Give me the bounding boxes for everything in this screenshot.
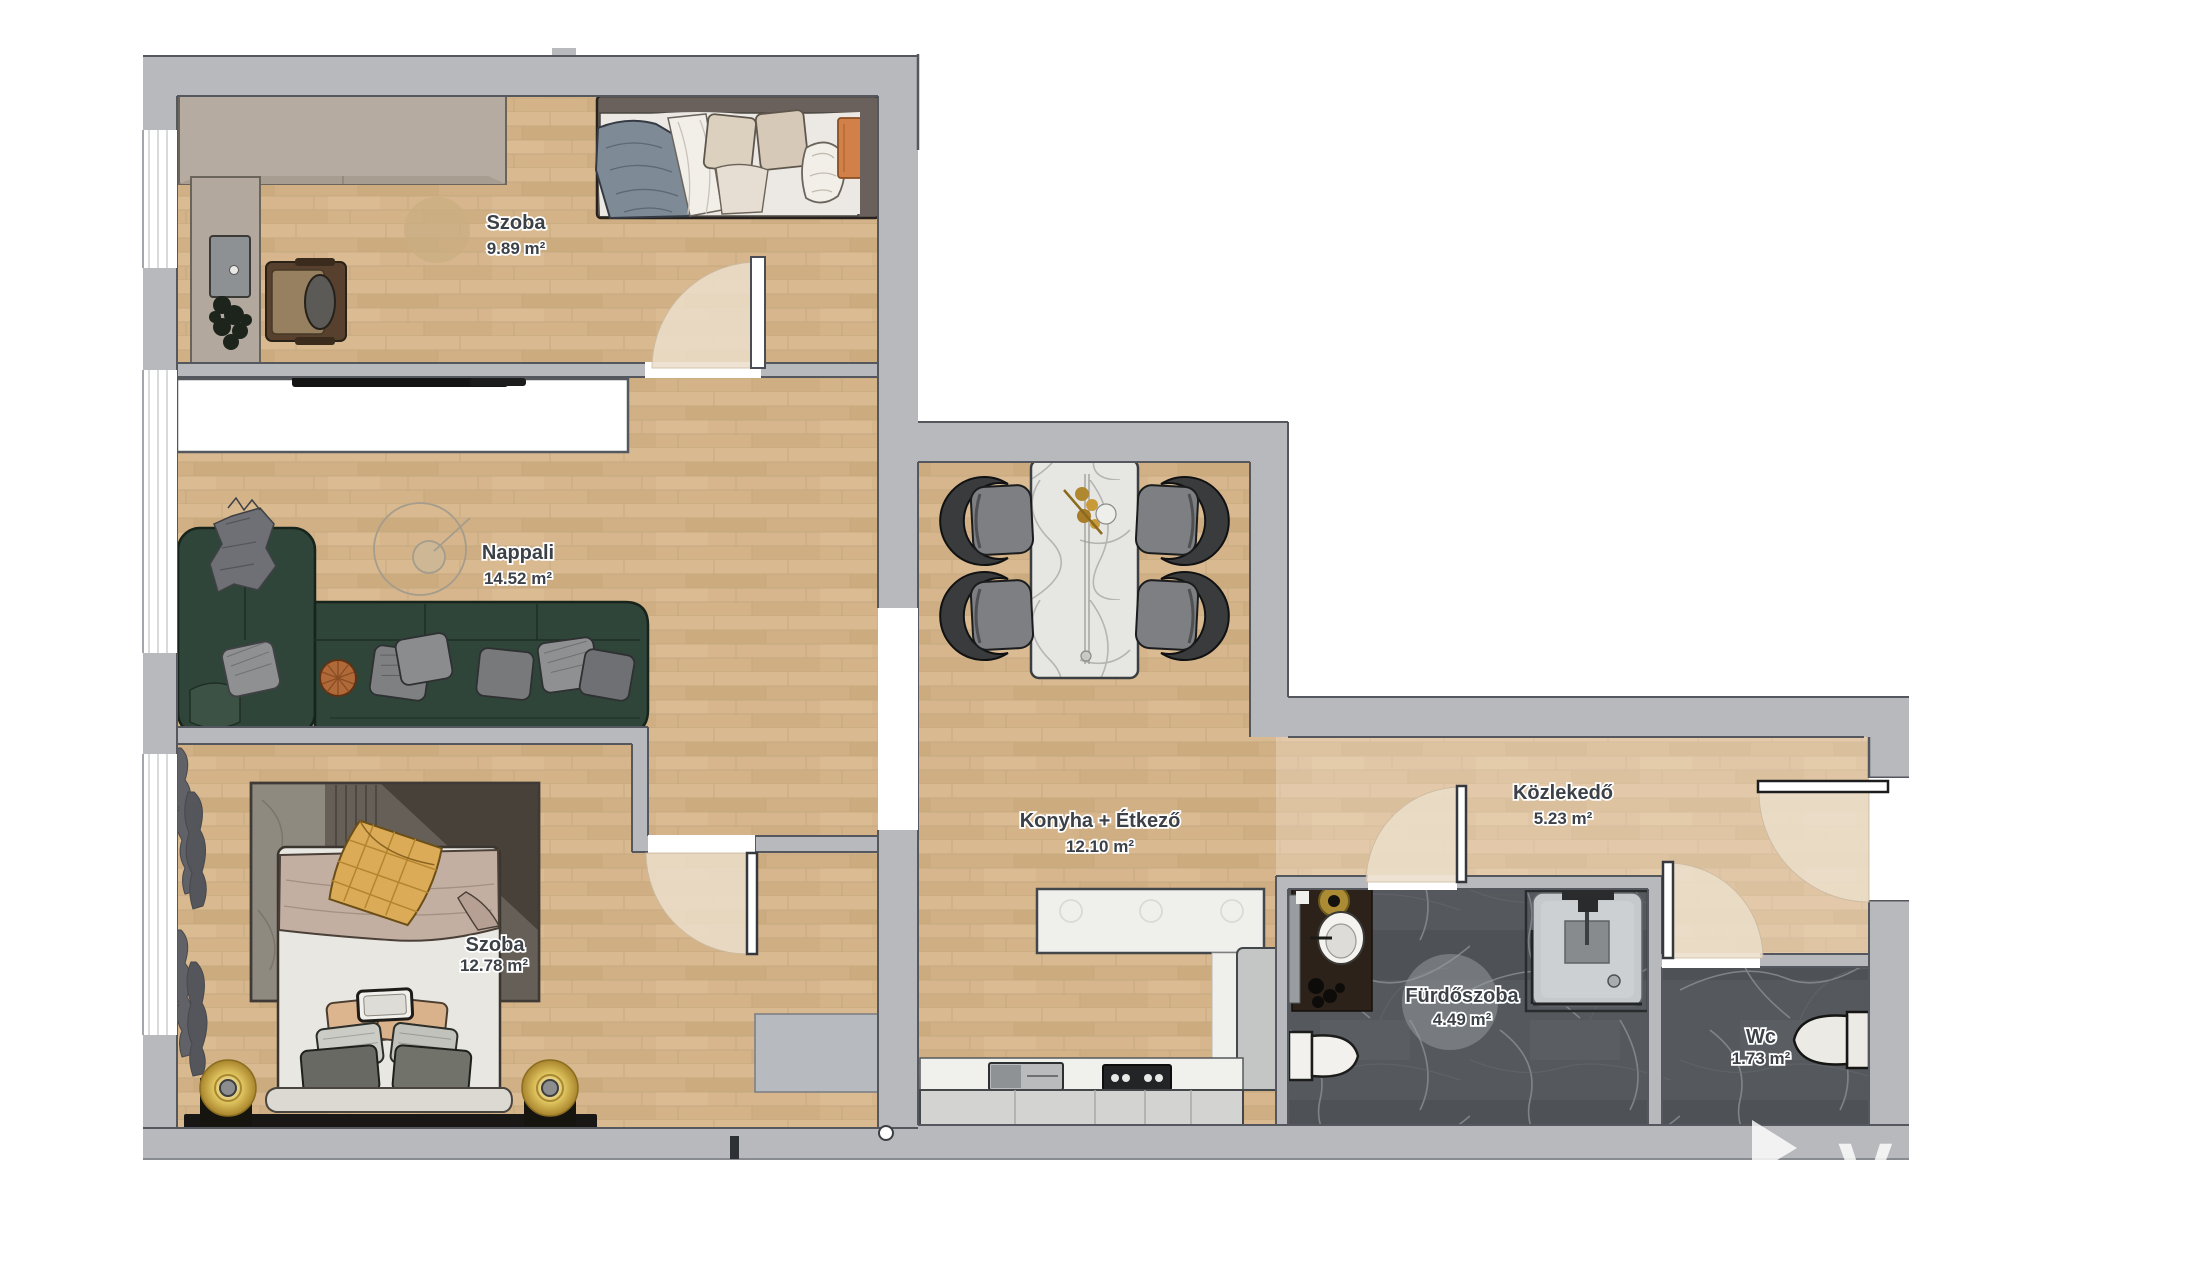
svg-text:Konyha + Étkező: Konyha + Étkező	[1020, 809, 1181, 832]
svg-text:12.10 m²: 12.10 m²	[1066, 837, 1134, 856]
svg-text:Szoba: Szoba	[466, 934, 526, 956]
svg-text:9.89 m²: 9.89 m²	[487, 239, 546, 258]
svg-text:V: V	[1838, 1127, 1893, 1218]
svg-text:4.49 m²: 4.49 m²	[1433, 1010, 1492, 1029]
svg-text:14.52 m²: 14.52 m²	[484, 569, 552, 588]
svg-text:5.23 m²: 5.23 m²	[1534, 809, 1593, 828]
svg-text:1.73 m²: 1.73 m²	[1732, 1049, 1791, 1068]
svg-text:Közlekedő: Közlekedő	[1513, 782, 1613, 804]
svg-text:12.78 m²: 12.78 m²	[460, 956, 528, 975]
svg-text:Fürdőszoba: Fürdőszoba	[1405, 985, 1519, 1007]
svg-text:Wc: Wc	[1746, 1026, 1776, 1048]
svg-text:Nappali: Nappali	[482, 542, 554, 564]
svg-text:Szoba: Szoba	[487, 212, 547, 234]
